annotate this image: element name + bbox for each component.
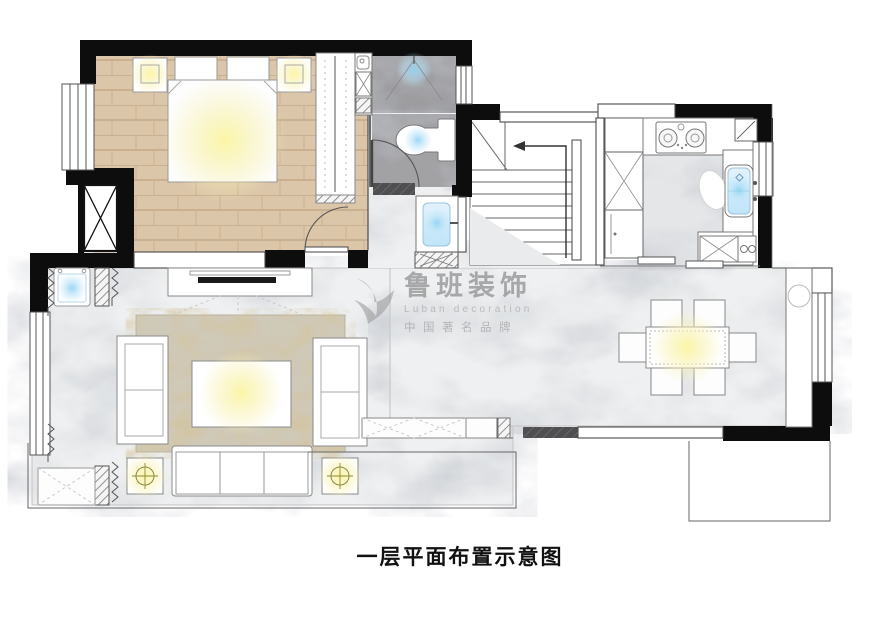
loveseat-left	[117, 336, 168, 444]
staircase	[470, 118, 600, 265]
sofa	[172, 446, 312, 496]
bedroom-window	[62, 84, 94, 170]
lamp-glow	[130, 54, 170, 94]
refrigerator-icon	[735, 119, 757, 141]
shower-window	[456, 66, 472, 104]
loveseat-right	[313, 338, 367, 446]
side-table-left	[123, 454, 167, 498]
gas-stove-icon	[656, 122, 706, 153]
door-threshold	[373, 183, 415, 195]
baseboard-strip	[578, 427, 723, 438]
stair-handrail	[572, 140, 581, 260]
bedroom-light-glow	[163, 78, 287, 202]
entry-threshold	[523, 427, 578, 438]
pillar	[95, 268, 109, 306]
dining-hall-floor	[390, 268, 830, 426]
pendant-light-glow	[651, 311, 723, 383]
dining-chair	[729, 333, 756, 362]
washing-machine-icon	[54, 268, 90, 306]
sofa-cushion	[220, 452, 264, 494]
wardrobe	[316, 53, 355, 203]
sideboard	[786, 268, 812, 427]
wall-living-left	[30, 253, 48, 312]
lamp-glow	[274, 54, 314, 94]
side-table-right	[318, 454, 362, 498]
pillar	[95, 466, 109, 505]
kitchen-window	[753, 142, 773, 196]
low-cabinet-left	[38, 468, 95, 505]
sofa-cushion	[176, 452, 220, 494]
wall-dining-bottom	[723, 426, 830, 441]
plan-caption: 一层平面布置示意图	[25, 541, 870, 571]
floor-plan-page: 鲁班装饰 Luban decoration 中国著名品牌 一层平面布置示意图	[0, 0, 870, 617]
tv-shelf	[190, 271, 290, 275]
structural-column	[84, 185, 117, 251]
sofa-cushion	[264, 452, 308, 494]
low-cabinet-row	[362, 418, 510, 438]
base-cabinet	[698, 232, 756, 265]
floor-plan	[0, 0, 870, 540]
tv-feature-wall	[134, 252, 265, 268]
terrace-outline	[689, 441, 830, 521]
vanity-sink	[415, 196, 458, 268]
dining-window	[812, 293, 832, 382]
tv-icon	[198, 277, 276, 283]
kitchen-sink-icon	[724, 165, 757, 217]
tall-cabinets	[605, 118, 643, 258]
dining-chair	[619, 333, 646, 362]
living-window	[30, 312, 50, 455]
coffee-table-glow	[199, 351, 283, 435]
utility-strip	[355, 53, 372, 115]
wall-dining-right	[812, 382, 832, 426]
